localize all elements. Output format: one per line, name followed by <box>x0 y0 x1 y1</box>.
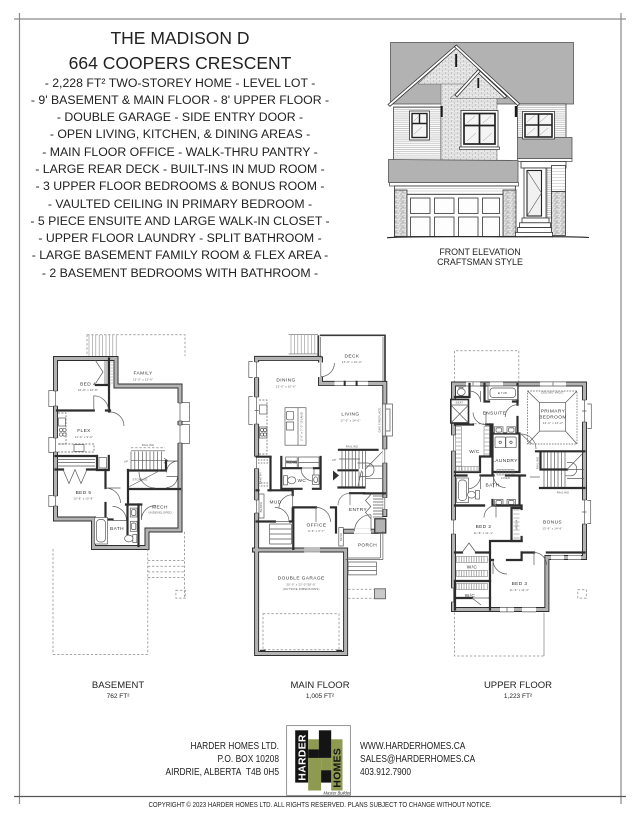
svg-text:PANTRY: PANTRY <box>259 472 263 484</box>
svg-text:RAILING: RAILING <box>535 457 539 470</box>
svg-text:BATH: BATH <box>110 526 124 532</box>
svg-text:DECK: DECK <box>345 354 360 360</box>
svg-text:13'-0" x 10'-6": 13'-0" x 10'-6" <box>276 385 296 389</box>
svg-text:CEILING VAULT: CEILING VAULT <box>541 391 564 395</box>
svg-text:ENTRY: ENTRY <box>349 507 368 513</box>
svg-text:17'-0" x 14'-0": 17'-0" x 14'-0" <box>340 419 360 423</box>
svg-text:UNDEVELOPED: UNDEVELOPED <box>148 511 171 515</box>
svg-text:10'-8" x 10'-8": 10'-8" x 10'-8" <box>78 388 98 392</box>
svg-text:OFFICE: OFFICE <box>307 523 327 529</box>
svg-text:BENCH: BENCH <box>259 502 263 513</box>
svg-text:PORCH: PORCH <box>358 543 377 549</box>
svg-text:PRIMARY: PRIMARY <box>541 409 566 415</box>
svg-text:UP: UP <box>332 458 336 462</box>
svg-text:DOUBLE GARAGE: DOUBLE GARAGE <box>278 576 325 582</box>
svg-text:BED 3: BED 3 <box>512 581 528 587</box>
svg-text:RAILING: RAILING <box>142 443 155 447</box>
svg-text:WC: WC <box>298 478 307 484</box>
svg-text:DESK: DESK <box>339 533 343 541</box>
svg-text:LIVING: LIVING <box>341 412 359 418</box>
svg-text:RAILING: RAILING <box>557 491 570 495</box>
svg-text:BEDROOM: BEDROOM <box>539 415 567 421</box>
svg-text:BED 2: BED 2 <box>476 524 492 530</box>
svg-text:14'-0" x 10'-0": 14'-0" x 10'-0" <box>342 360 362 364</box>
svg-text:W/C: W/C <box>467 565 478 571</box>
svg-text:Master Builder: Master Builder <box>324 791 352 796</box>
svg-text:FLEX: FLEX <box>77 428 91 434</box>
svg-text:LAUNDRY: LAUNDRY <box>492 458 518 464</box>
svg-text:BATH: BATH <box>485 483 499 489</box>
svg-text:13'-6" x 14'-6": 13'-6" x 14'-6" <box>542 527 562 531</box>
svg-text:HOMES: HOMES <box>332 748 343 788</box>
svg-text:2'-6" x 7'-0" ISLAND: 2'-6" x 7'-0" ISLAND <box>300 412 304 441</box>
svg-text:MEDIA: MEDIA <box>515 520 519 530</box>
svg-text:UP: UP <box>124 460 128 464</box>
svg-text:FRIDGE: FRIDGE <box>286 460 298 464</box>
svg-text:SEAT: SEAT <box>456 401 464 405</box>
svg-text:(OUTSIDE DIMENSIONS): (OUTSIDE DIMENSIONS) <box>283 587 320 591</box>
svg-text:■ TUB: ■ TUB <box>498 391 507 395</box>
svg-text:BED 4: BED 4 <box>80 382 96 388</box>
svg-text:11'-6" x 9'-0": 11'-6" x 9'-0" <box>75 435 93 439</box>
svg-text:9'-6" x 9'-7": 9'-6" x 9'-7" <box>308 529 325 533</box>
svg-text:BED 5: BED 5 <box>76 490 92 496</box>
svg-text:11'-8" x 11'-1": 11'-8" x 11'-1" <box>474 531 494 535</box>
svg-text:ENSUITE: ENSUITE <box>483 411 507 417</box>
svg-text:13'-0" x 13'-6": 13'-0" x 13'-6" <box>133 378 153 382</box>
svg-text:DINING: DINING <box>276 378 295 384</box>
svg-text:HARDER: HARDER <box>297 734 308 781</box>
svg-text:FAMILY: FAMILY <box>133 371 153 377</box>
svg-text:11'-6" x 11'-2": 11'-6" x 11'-2" <box>510 588 530 592</box>
svg-text:13'-6" x 14'-2": 13'-6" x 14'-2" <box>543 421 563 425</box>
svg-text:20'-0" x 22'-0"/28'-0": 20'-0" x 22'-0"/28'-0" <box>286 583 316 587</box>
svg-text:W/C: W/C <box>469 449 480 455</box>
svg-text:10'-8" x 10'-8": 10'-8" x 10'-8" <box>73 497 93 501</box>
svg-text:GAS FIREPLACE: GAS FIREPLACE <box>378 408 382 433</box>
svg-text:BONUS: BONUS <box>543 520 562 526</box>
svg-text:STORAGE: STORAGE <box>132 478 147 482</box>
svg-text:MUD: MUD <box>269 500 281 506</box>
svg-text:RAILING: RAILING <box>346 445 359 449</box>
